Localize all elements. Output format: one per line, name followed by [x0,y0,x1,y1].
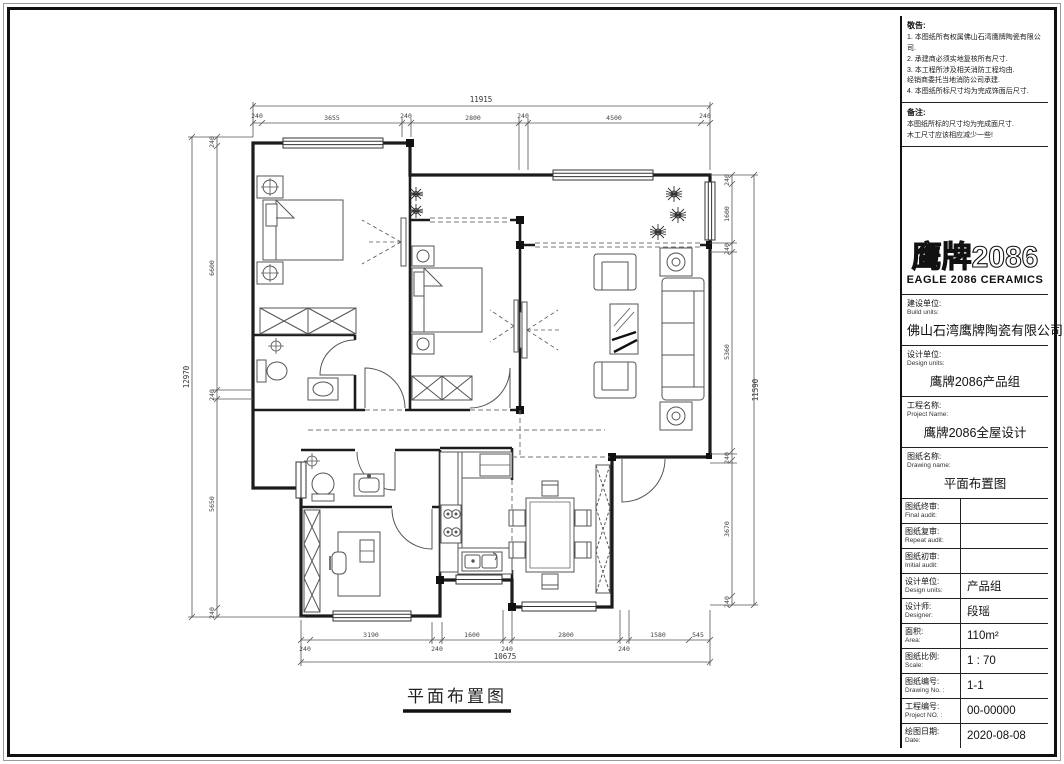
armchair [594,254,636,290]
field-design-units-2: 设计单位:Design units: 产品组 [902,574,1048,599]
dining-chair [509,542,525,558]
plant-icon [666,186,682,202]
dining-chair [509,510,525,526]
field-label-cn: 绘图日期: [905,726,957,737]
field-value [961,524,1048,548]
plant-icon [650,224,666,240]
entry-door [622,459,665,502]
svg-text:2800: 2800 [558,631,574,639]
plant-icon [409,204,423,218]
plants [409,186,686,240]
field-value: 1 : 70 [961,649,1048,673]
field-area: 面积:Area: 110m² [902,624,1048,649]
coffee-table [610,304,638,354]
svg-text:240: 240 [400,112,412,120]
field-label-en: Scale: [905,662,957,669]
svg-text:240: 240 [251,112,263,120]
svg-text:12970: 12970 [182,365,191,388]
bath2-fixtures [304,453,384,501]
field-label-en: Project Name: [907,411,1043,418]
svg-text:240: 240 [517,112,529,120]
field-value: 2020-08-08 [961,724,1048,748]
field-value: 110m² [961,624,1048,648]
remark-line: 木工尺寸应该相应减少一些! [907,131,1043,142]
svg-text:3655: 3655 [324,114,340,122]
svg-text:545: 545 [692,631,704,639]
dining-chair [575,542,591,558]
study-furniture [304,510,380,612]
field-designer: 设计师:Designer: 段瑶 [902,599,1048,624]
field-label-en: Final audit: [905,512,957,519]
dining-chair [542,481,558,496]
field-value [961,549,1048,573]
field-label-cn: 图纸复审: [905,526,957,537]
svg-text:240: 240 [431,645,443,653]
field-value [961,499,1048,523]
fridge [480,454,510,476]
notice-line: 3. 本工程所涉及相关消防工程均由. [907,66,1043,77]
plant-icon [409,187,423,201]
bedroom2-furniture [412,246,518,400]
notice-box: 敬告: 1. 本图纸所有权属佛山石湾鹰牌陶瓷有限公司. 2. 承建商必须实地复核… [902,16,1048,103]
field-label-cn: 图纸比例: [905,651,957,662]
tall-cabinet [596,465,610,593]
svg-text:11915: 11915 [470,95,493,104]
wardrobe [304,510,320,612]
field-label-cn: 图纸编号: [905,676,957,687]
dimension-text-right: 240 1600 240 5360 240 3670 240 11590 [723,174,760,608]
dimension-text-left: 240 6600 240 5650 240 12970 [182,136,216,619]
dimension-text-bottom: 240 3190 240 1600 240 2800 240 1580 545 … [299,631,704,661]
nightstand [412,334,434,354]
sheet-inner-border: 11915 240 3655 240 2800 240 4500 240 240… [7,7,1057,757]
field-value: 平面布置图 [907,473,1043,492]
notice-line: 4. 本图纸所标尺寸均为完成饰面后尺寸. [907,87,1043,98]
hob-icon [441,505,461,543]
dining-furniture [509,465,610,593]
svg-text:11590: 11590 [751,378,760,401]
plant-icon [670,207,686,223]
remark-line: 本图纸所标的尺寸均为完成面尺寸. [907,120,1043,131]
field-label-en: Designer: [905,612,957,619]
field-label-cn: 图纸初审: [905,551,957,562]
tv-bedroom2 [514,300,518,352]
field-value: 佛山石湾鹰牌陶瓷有限公司 [907,320,1043,339]
study-door [392,509,432,549]
wardrobe [412,376,472,400]
field-label-en: Project NO. : [905,712,957,719]
field-label-en: Build units: [907,309,1043,316]
svg-text:240: 240 [723,452,731,464]
tv-master [401,218,406,266]
openings [308,218,700,570]
field-value: 产品组 [961,574,1048,598]
svg-text:2800: 2800 [465,114,481,122]
field-build-units: 建设单位: Build units: 佛山石湾鹰牌陶瓷有限公司 [902,295,1048,346]
ceiling-light-icon [268,338,284,354]
dining-chair [575,510,591,526]
dining-chair [542,574,558,589]
field-label-cn: 工程名称: [907,400,1043,411]
svg-text:6600: 6600 [208,260,216,276]
svg-text:240: 240 [618,645,630,653]
nightstand [412,246,434,266]
field-value: 鹰牌2086产品组 [907,371,1043,390]
field-final-audit: 图纸终审:Final audit: [902,499,1048,524]
panel-spacer [902,147,1048,236]
svg-text:10675: 10675 [494,652,517,661]
kitchen-fixtures [440,452,512,574]
notice-line: 经销商委托当地消防公司承建. [907,76,1043,87]
master-bedroom-furniture [257,176,406,334]
pillow [266,204,277,226]
plan-caption: 平面布置图 [403,687,511,711]
field-label-cn: 面积: [905,626,957,637]
field-project-name: 工程名称: Project Name: 鹰牌2086全屋设计 [902,397,1048,448]
field-label-cn: 图纸终审: [905,501,957,512]
notice-title: 敬告: [907,20,1043,31]
office-chair [330,552,346,574]
svg-text:240: 240 [299,645,311,653]
toilet-icon [312,473,334,495]
svg-text:240: 240 [208,136,216,148]
living-room-furniture [520,248,704,430]
dimension-text-top: 11915 240 3655 240 2800 240 4500 240 [251,95,711,122]
remark-box: 备注: 本图纸所标的尺寸均为完成面尺寸. 木工尺寸应该相应减少一些! [902,103,1048,147]
dining-table [526,498,574,572]
brand-logo-en: EAGLE 2086 CERAMICS [904,274,1046,286]
svg-text:3670: 3670 [723,521,731,537]
pillow [414,272,424,296]
field-label-cn: 设计单位: [905,576,957,587]
bath1-door [320,340,355,375]
side-table-lamp [660,402,692,430]
floor-plan-area: 11915 240 3655 240 2800 240 4500 240 240… [10,10,908,758]
svg-text:1580: 1580 [650,631,666,639]
field-repeat-audit: 图纸复审:Repeat audit: [902,524,1048,549]
side-table-lamp [660,248,692,276]
armchair [594,362,636,398]
svg-text:4500: 4500 [606,114,622,122]
notice-line: 2. 承建商必须实地复核所有尺寸. [907,55,1043,66]
bath1-fixtures [257,338,338,400]
field-label-cn: 图纸名称: [907,451,1043,462]
field-label-en: Design units: [905,587,957,594]
field-value: 段瑶 [961,599,1048,623]
sheet-outer-border: 11915 240 3655 240 2800 240 4500 240 240… [3,3,1061,761]
field-date: 绘图日期:Date: 2020-08-08 [902,724,1048,748]
field-value: 1-1 [961,674,1048,698]
field-drawing-name: 图纸名称: Drawing name: 平面布置图 [902,448,1048,499]
field-label-en: Drawing No. : [905,687,957,694]
svg-text:5650: 5650 [208,496,216,512]
svg-text:240: 240 [208,389,216,401]
svg-text:240: 240 [723,596,731,608]
master-door [365,368,405,408]
field-drawing-no: 图纸编号:Drawing No. : 1-1 [902,674,1048,699]
brand-logo-cn: 鹰牌2086 [904,242,1046,274]
floor-plan-svg: 11915 240 3655 240 2800 240 4500 240 240… [10,10,908,758]
field-initial-audit: 图纸初审:Initial audit: [902,549,1048,574]
bedroom2-door [470,368,510,408]
svg-text:240: 240 [723,243,731,255]
svg-text:240: 240 [208,607,216,619]
field-value: 鹰牌2086全屋设计 [907,422,1043,441]
drawing-sheet: { "plan": { "caption": "平面布置图", "dims": … [0,0,1064,764]
toilet-tank [257,360,266,382]
svg-text:240: 240 [699,112,711,120]
tv-living [522,302,527,358]
field-label-en: Date: [905,737,957,744]
field-label-en: Drawing name: [907,462,1043,469]
field-design-units: 设计单位: Design units: 鹰牌2086产品组 [902,346,1048,397]
field-scale: 图纸比例:Scale: 1 : 70 [902,649,1048,674]
title-block-panel: 敬告: 1. 本图纸所有权属佛山石湾鹰牌陶瓷有限公司. 2. 承建商必须实地复核… [900,16,1048,748]
svg-text:平面布置图: 平面布置图 [407,687,507,706]
toilet-icon [267,362,287,380]
sink-icon [462,552,502,571]
svg-text:240: 240 [723,174,731,186]
field-value: 00-00000 [961,699,1048,723]
field-label-en: Design units: [907,360,1043,367]
field-label-en: Initial audit: [905,562,957,569]
field-label-cn: 设计单位: [907,349,1043,360]
remark-title: 备注: [907,107,1043,118]
wardrobe [260,308,356,334]
sofa [662,278,704,400]
svg-text:1600: 1600 [464,631,480,639]
field-label-cn: 工程编号: [905,701,957,712]
notice-line: 1. 本图纸所有权属佛山石湾鹰牌陶瓷有限公司. [907,33,1043,55]
svg-text:3190: 3190 [363,631,379,639]
field-label-cn: 建设单位: [907,298,1043,309]
field-label-cn: 设计师: [905,601,957,612]
svg-text:1600: 1600 [723,206,731,222]
field-label-en: Repeat audit: [905,537,957,544]
logo-box: 鹰牌2086 EAGLE 2086 CERAMICS [902,236,1048,296]
svg-text:5360: 5360 [723,344,731,360]
field-label-en: Area: [905,637,957,644]
field-project-no: 工程编号:Project NO. : 00-00000 [902,699,1048,724]
